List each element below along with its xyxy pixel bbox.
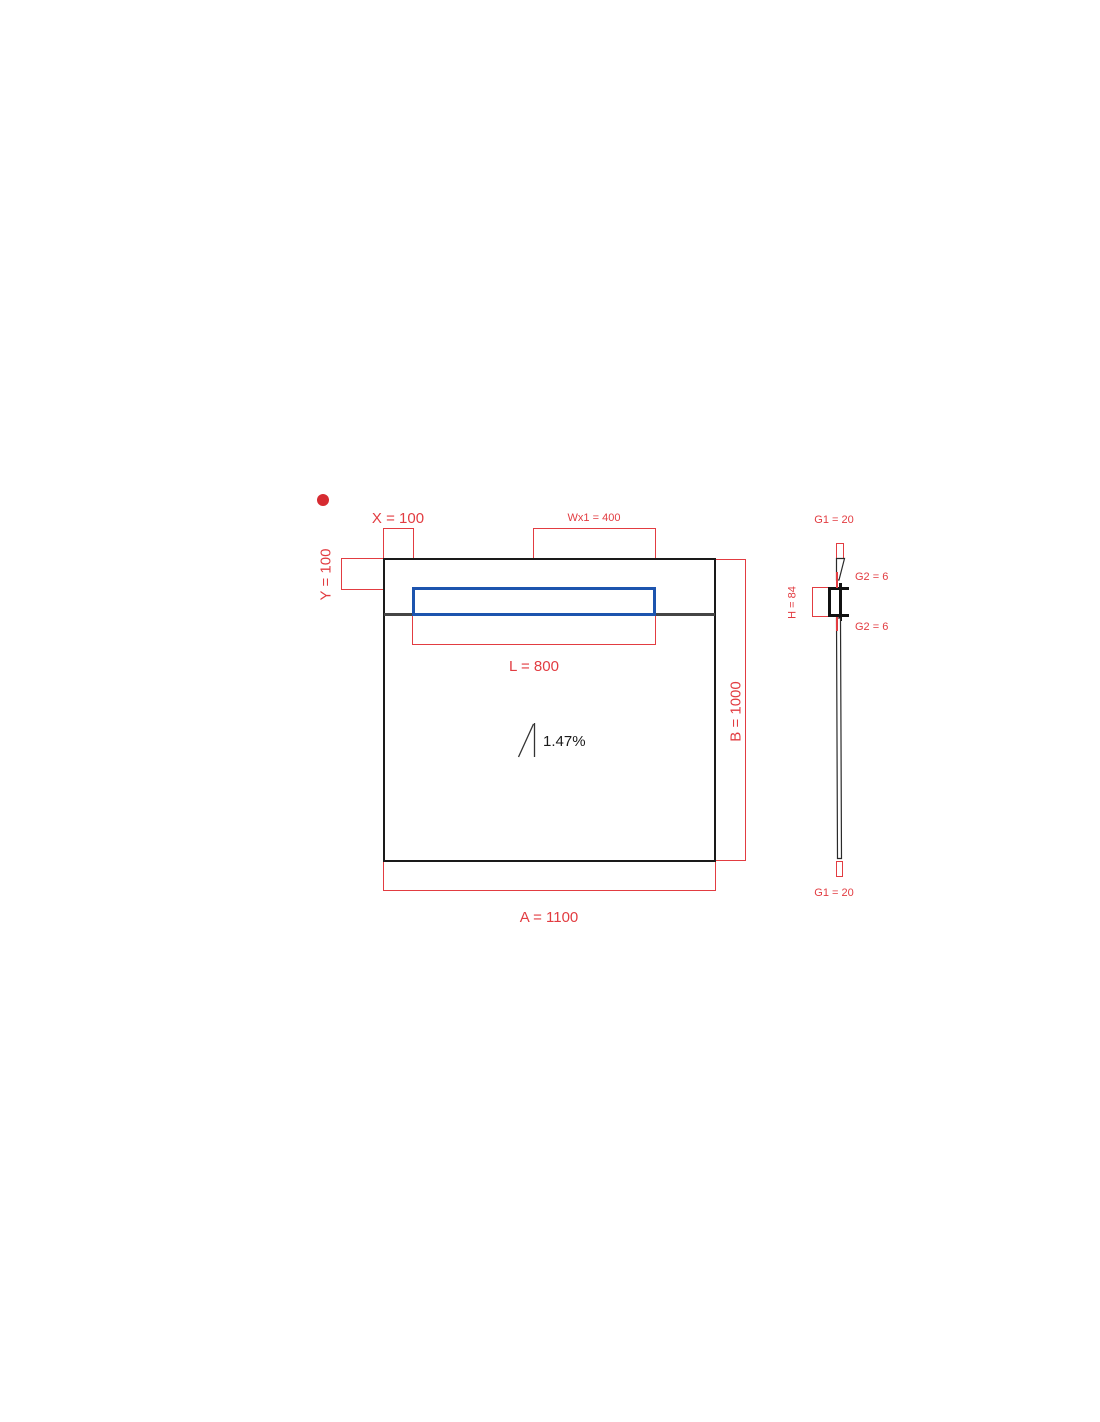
dim-wx1-label: Wx1 = 400: [534, 512, 654, 525]
dim-g2-top-marker: [836, 572, 838, 588]
dim-l-label: L = 800: [474, 658, 594, 675]
dim-x-label: X = 100: [338, 510, 458, 527]
dim-b-label: B = 1000: [728, 652, 745, 772]
slope-symbol-diagonal-line: [519, 724, 534, 757]
reference-dot-marker: [317, 494, 329, 506]
technical-drawing-canvas: X = 100 Wx1 = 400 Y = 100 L = 800 B = 10…: [0, 0, 1100, 1422]
dim-a-label: A = 1100: [489, 909, 609, 926]
profile-geometry-layer: [0, 0, 1100, 1422]
dim-g1-top-label: G1 = 20: [774, 514, 894, 527]
dim-g1-bottom-label: G1 = 20: [774, 887, 894, 900]
dim-y-label: Y = 100: [318, 515, 335, 635]
slope-percentage-label: 1.47%: [543, 733, 586, 750]
profile-lower-taper: [837, 618, 842, 859]
dim-h-label: H = 84: [787, 573, 800, 633]
dim-g2-top-label: G2 = 6: [855, 571, 915, 584]
dim-g2-bottom-marker: [836, 617, 838, 631]
dim-g2-bottom-label: G2 = 6: [855, 621, 915, 634]
